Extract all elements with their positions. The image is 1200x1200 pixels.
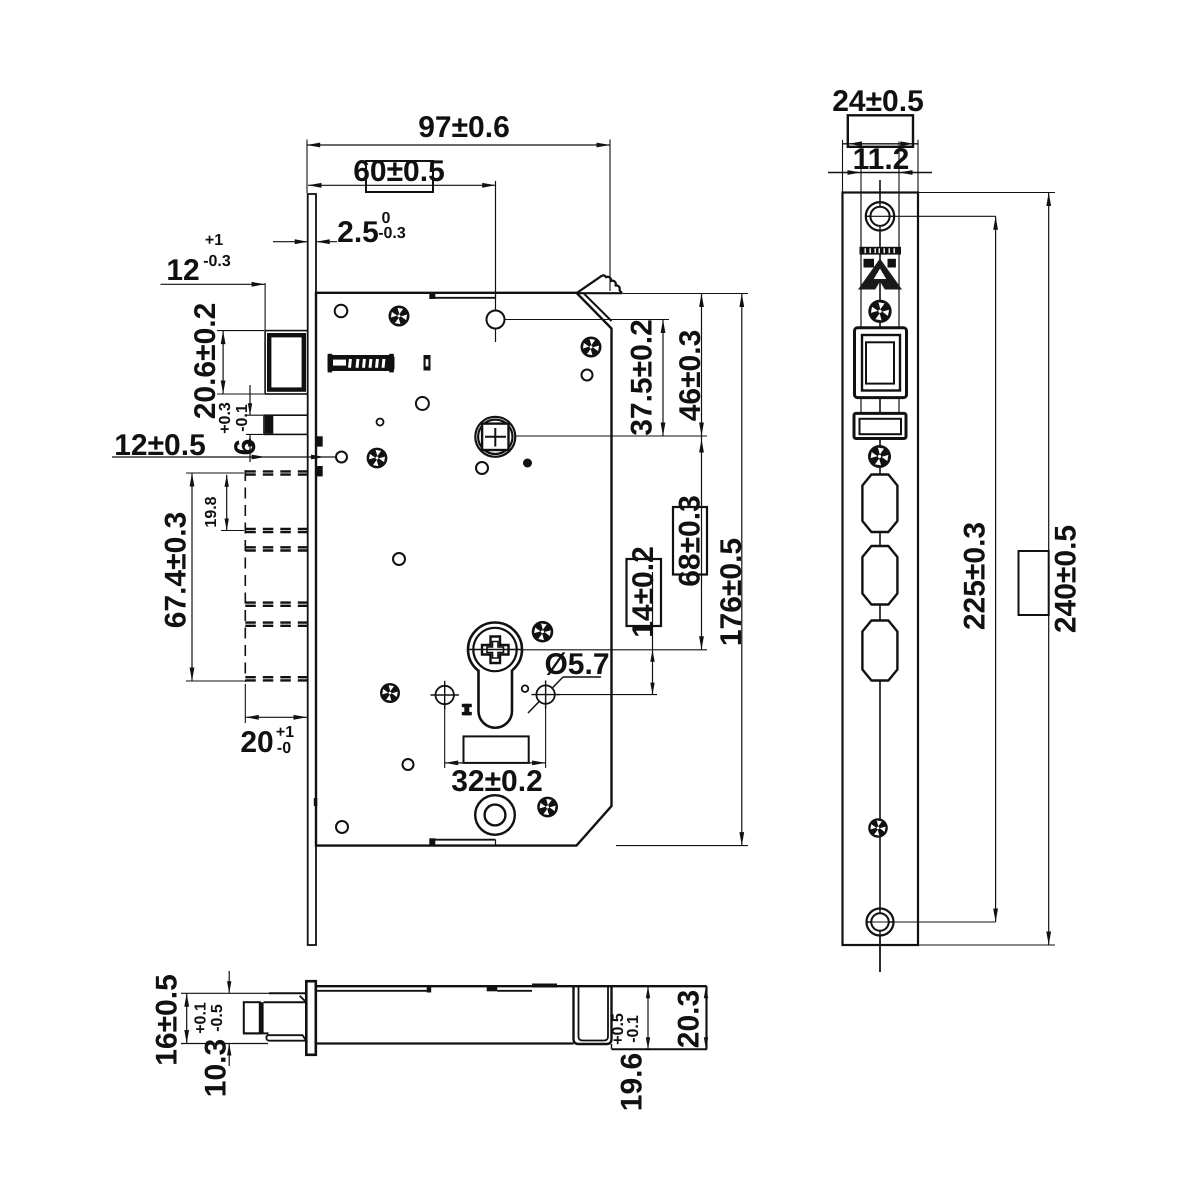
svg-text:11.2: 11.2 — [853, 143, 910, 176]
svg-text:-0.3: -0.3 — [203, 253, 231, 270]
svg-text:32±0.2: 32±0.2 — [451, 765, 543, 798]
svg-text:+1: +1 — [205, 232, 223, 249]
svg-text:+1: +1 — [276, 724, 294, 741]
svg-text:Ø5.7: Ø5.7 — [544, 648, 609, 681]
svg-text:68±0.3: 68±0.3 — [674, 495, 707, 587]
svg-text:10.3: 10.3 — [200, 1039, 233, 1097]
svg-text:-0.3: -0.3 — [378, 225, 406, 242]
svg-text:-0.1: -0.1 — [234, 404, 251, 432]
svg-text:6: 6 — [229, 439, 262, 456]
svg-text:46±0.3: 46±0.3 — [674, 330, 707, 422]
svg-text:225±0.3: 225±0.3 — [959, 522, 992, 630]
svg-text:60±0.5: 60±0.5 — [353, 155, 445, 188]
svg-text:97±0.6: 97±0.6 — [418, 111, 510, 144]
svg-text:2.5: 2.5 — [337, 216, 379, 249]
svg-text:20.6±0.2: 20.6±0.2 — [189, 303, 222, 420]
svg-text:14±0.2: 14±0.2 — [627, 546, 660, 638]
svg-text:19.6: 19.6 — [616, 1053, 649, 1111]
svg-text:176±0.5: 176±0.5 — [715, 538, 748, 646]
svg-text:12: 12 — [166, 254, 199, 287]
svg-text:20: 20 — [240, 726, 273, 759]
svg-text:+0.1: +0.1 — [193, 1002, 210, 1034]
svg-text:16±0.5: 16±0.5 — [151, 974, 184, 1066]
svg-text:-0: -0 — [277, 740, 291, 757]
svg-text:24±0.5: 24±0.5 — [832, 85, 924, 118]
svg-text:20.3: 20.3 — [673, 990, 706, 1048]
svg-text:37.5±0.2: 37.5±0.2 — [626, 319, 659, 436]
svg-text:+0.3: +0.3 — [217, 402, 234, 434]
svg-text:19.8: 19.8 — [203, 496, 220, 527]
svg-text:67.4±0.3: 67.4±0.3 — [160, 512, 193, 629]
svg-text:-0.5: -0.5 — [209, 1004, 226, 1032]
svg-text:240±0.5: 240±0.5 — [1050, 525, 1083, 633]
svg-text:-0.1: -0.1 — [625, 1015, 642, 1043]
